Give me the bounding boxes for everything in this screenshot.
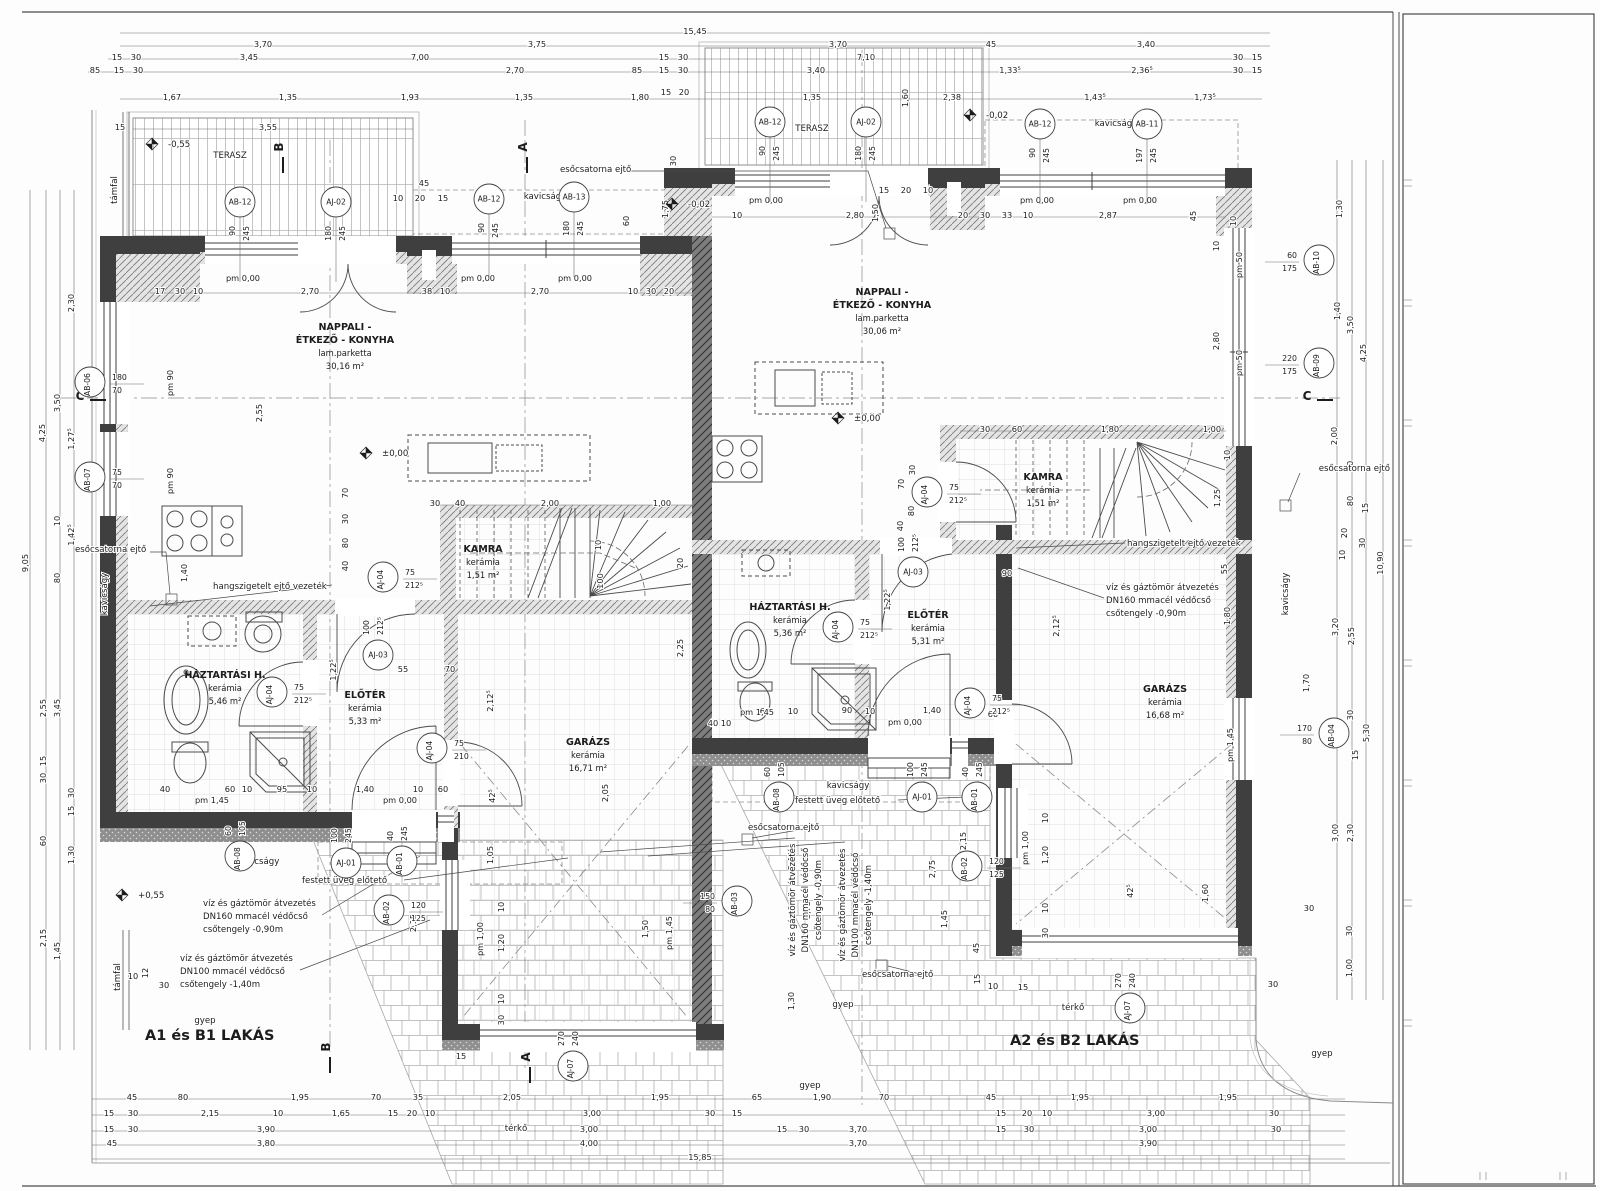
dimension-text: 15 (115, 122, 125, 132)
dimension-text: 15 (1252, 65, 1262, 75)
tag-code: AB-09 (1312, 354, 1321, 377)
dimension-text: 30 (1344, 926, 1354, 936)
dimension-text: pm 1,45 (1225, 728, 1235, 762)
tag-size: 60 (763, 767, 772, 777)
room-label: kerámia (1026, 485, 1060, 495)
dimension-text: 10 (413, 784, 423, 794)
dimension-text: pm 0,00 (383, 795, 417, 805)
annotation-text: kavicságy (827, 781, 870, 791)
dimension-text: 60 (38, 836, 48, 846)
dimension-text: 2,15 (201, 1108, 219, 1118)
dimension-text: 45 (1188, 211, 1198, 221)
dimension-text: 2,36⁵ (1131, 65, 1153, 75)
dimension-text: 1,42⁵ (66, 524, 76, 546)
dimension-text: pm 1,45 (195, 795, 229, 805)
tag-size: 40 (386, 831, 395, 841)
annotation-text: TERASZ (212, 151, 247, 161)
tag-size: 90 (477, 223, 486, 233)
room-label: KAMRA (1023, 472, 1063, 483)
dimension-text: pm 0,00 (749, 195, 783, 205)
dimension-text: 10 (628, 286, 638, 296)
dimension-text: 20 (958, 210, 968, 220)
dimension-text: 20 (1022, 1108, 1032, 1118)
dimension-text: 1,33⁵ (999, 65, 1021, 75)
dimension-text: 7,10 (857, 52, 875, 62)
dimension-text: 15 (104, 1108, 114, 1118)
annotation-text: víz és gáztömör átvezetés (203, 898, 316, 909)
dimension-text: 15 (879, 185, 889, 195)
dimension-text: 1,67 (163, 92, 181, 102)
tag-size: 220 (1282, 354, 1297, 363)
annotation-text: támfal (110, 176, 120, 204)
dimension-text: 15 (104, 1124, 114, 1134)
dimension-text: 70 (896, 479, 906, 489)
dimension-text: 40 (708, 718, 718, 728)
tag-code: AB-02 (960, 857, 969, 880)
tag-code: AJ-02 (326, 198, 346, 207)
dimension-text: 2,12⁵ (1051, 615, 1061, 637)
drawing-sheet: 15,453,703,753,70453,4015303,457,0015307… (0, 0, 1600, 1191)
dimension-text: 2,75 (927, 860, 937, 878)
dimension-text: 10 (721, 718, 731, 728)
dimension-text: 80 (178, 1092, 188, 1102)
dimension-text: 3,90 (1139, 1138, 1157, 1148)
tag-size: 75 (949, 483, 959, 492)
dimension-text: 45 (971, 943, 981, 953)
dimension-text: 3,75 (528, 39, 546, 49)
dimension-text: pm 1,45 (740, 707, 774, 717)
dimension-text: 1,73⁵ (1194, 92, 1216, 102)
dimension-text: pm 0,00 (888, 717, 922, 727)
dimension-text: 42⁵ (487, 789, 497, 803)
dimension-text: pm 50 (1234, 350, 1244, 376)
section-marker: B (319, 1042, 333, 1051)
dimension-text: 30 (678, 52, 688, 62)
section-marker: B (272, 142, 286, 151)
dimension-text: 2,12⁵ (485, 690, 495, 712)
tag-code: AJ-01 (912, 793, 932, 802)
dimension-text: 1,43⁵ (1084, 92, 1106, 102)
dimension-text: 10 (1040, 813, 1050, 823)
dimension-text: 70 (879, 1092, 889, 1102)
annotation-text: víz és gáztömör átvezetés (837, 848, 848, 961)
tag-size: 245 (772, 146, 781, 161)
dimension-text: 2,00 (541, 498, 559, 508)
dimension-text: 45 (127, 1092, 137, 1102)
room-label: NAPPALI - (855, 287, 908, 298)
tag-code: AB-07 (83, 468, 92, 491)
room-label: 5,33 m² (349, 716, 382, 726)
dimension-text: 70 (445, 664, 455, 674)
dimension-text: 1,30 (1334, 200, 1344, 218)
dimension-text: 30 (1357, 538, 1367, 548)
tag-size: 170 (1297, 724, 1312, 733)
tag-size: 175 (1282, 264, 1297, 273)
tag-code: AB-06 (83, 373, 92, 396)
tag-size: 90 (228, 226, 237, 236)
tag-size: 75 (860, 618, 870, 627)
tag-size: 210 (454, 752, 469, 761)
annotation-text: TERASZ (794, 124, 829, 134)
tag-size: 125 (989, 870, 1004, 879)
tag-size: 105 (238, 821, 247, 836)
dimension-text: 30 (980, 210, 990, 220)
unit-label: A2 és B2 LAKÁS (1010, 1032, 1139, 1049)
dimension-text: 30 (1304, 903, 1314, 913)
tag-size: 212⁵ (949, 496, 967, 505)
dimension-text: 3,90 (257, 1124, 275, 1134)
annotation-text: csőtengely -1,40m (864, 865, 874, 945)
dimension-text: 65 (752, 1092, 762, 1102)
tag-code: AJ-07 (566, 1059, 575, 1079)
tag-code: AB-13 (563, 193, 586, 202)
annotation-text: térkő (1062, 1002, 1084, 1013)
dimension-text: 30 (1233, 52, 1243, 62)
dimension-text: 30 (907, 465, 917, 475)
annotation-text: esőcsatorna ejtő (748, 823, 819, 833)
dimension-text: 1,45 (939, 910, 949, 928)
level-value: -0,55 (168, 140, 190, 150)
dimension-text: 15 (1252, 52, 1262, 62)
dimension-text: 2,70 (506, 65, 524, 75)
room-label: kerámia (911, 623, 945, 633)
dimension-text: 1,93 (401, 92, 419, 102)
dimension-text: 1,60 (900, 89, 910, 107)
dimension-text: 1,40 (179, 564, 189, 582)
dimension-text: 1,95 (291, 1092, 309, 1102)
dimension-text: 30 (980, 424, 990, 434)
annotation-text: esőcsatorna ejtő (1319, 464, 1390, 474)
level-marker-icon (360, 447, 372, 459)
dimension-text: 60 (225, 784, 235, 794)
tag-code: AB-01 (395, 852, 404, 875)
annotation-text: festett üveg előtető (795, 796, 880, 806)
tag-size: 100 (362, 620, 371, 635)
annotation-text: DN160 mmacél védőcső (1106, 595, 1211, 606)
room-label: lam.parketta (318, 348, 372, 358)
dimension-text: pm 1,00 (1020, 831, 1030, 865)
tag-size: 270 (1114, 973, 1123, 988)
dimension-text: 10 (1023, 210, 1033, 220)
tag-size: 245 (400, 826, 409, 841)
dimension-text: 1,60 (1200, 884, 1210, 902)
dimension-text: 1,75 (660, 200, 670, 218)
tag-size: 90 (1028, 148, 1037, 158)
dimension-text: 60 (621, 216, 631, 226)
tag-code: AJ-03 (903, 568, 923, 577)
dimension-text: 15 (777, 1124, 787, 1134)
dimension-text: 30 (799, 1124, 809, 1134)
dimension-text: pm 0,00 (558, 273, 592, 283)
dimension-text: 30 (133, 65, 143, 75)
tag-code: AJ-04 (425, 741, 434, 761)
room-label: kerámia (466, 557, 500, 567)
dimension-text: 2,55 (38, 699, 48, 717)
dimension-text: 2,55 (254, 404, 264, 422)
dimension-text: 30 (175, 286, 185, 296)
tag-code: AJ-04 (376, 570, 385, 590)
tag-size: 197 (1135, 148, 1144, 163)
dimension-text: 10 (1040, 903, 1050, 913)
section-marker: A (516, 142, 530, 152)
dimension-text: 10 (425, 1108, 435, 1118)
dimension-text: 70 (371, 1092, 381, 1102)
dimension-text: 10 (496, 902, 506, 912)
section-marker: C (1303, 389, 1312, 403)
tag-size: 245 (920, 762, 929, 777)
tag-code: AB-08 (233, 847, 242, 870)
dimension-text: 30 (128, 1108, 138, 1118)
dimension-text: 30 (1268, 979, 1278, 989)
tag-size: 70 (112, 481, 122, 490)
dimension-text: 10 (1337, 550, 1347, 560)
dimension-text: 10 (1042, 1108, 1052, 1118)
dimension-text: 70 (340, 488, 350, 498)
tag-size: 240 (1128, 973, 1137, 988)
dimension-text: 30 (1024, 1124, 1034, 1134)
room-label: 30,06 m² (863, 326, 901, 336)
dimension-text: 30 (678, 65, 688, 75)
dimension-text: 2,38 (943, 92, 961, 102)
dimension-text: 2,55 (1346, 627, 1356, 645)
dimension-text: 2,70 (301, 286, 319, 296)
tag-size: 180 (854, 146, 863, 161)
dimension-text: 15 (1350, 750, 1360, 760)
unit-label: A1 és B1 LAKÁS (145, 1027, 274, 1044)
tag-size: 212⁵ (405, 581, 423, 590)
dimension-text: 2,30 (1345, 824, 1355, 842)
room-label: kerámia (348, 703, 382, 713)
dimension-text: 30 (159, 980, 169, 990)
dimension-text: 1,00 (1203, 424, 1221, 434)
dimension-text: 80 (906, 506, 916, 516)
dimension-text: 1,45 (52, 942, 62, 960)
dimension-text: 38 (422, 286, 432, 296)
rain-pipe-icon (884, 228, 895, 239)
dimension-text: 30 (128, 1124, 138, 1134)
tag-size: 270 (557, 1031, 566, 1046)
dimension-text: 30 (340, 514, 350, 524)
tag-size: 212⁵ (294, 696, 312, 705)
annotation-text: támfal (113, 963, 123, 991)
tag-size: 245 (242, 226, 251, 241)
annotation-text: kavicságy (1281, 573, 1291, 616)
dimension-text: 15 (38, 756, 48, 766)
dimension-text: 1,80 (1222, 607, 1232, 625)
dimension-text: 1,70 (1301, 674, 1311, 692)
dimension-text: 40 (160, 784, 170, 794)
dimension-text: 20 (1339, 528, 1349, 538)
tag-code: AJ-04 (963, 696, 972, 716)
tag-size: 80 (705, 905, 715, 914)
dimension-text: 15 (996, 1108, 1006, 1118)
room-label: kerámia (208, 683, 242, 693)
dimension-text: pm 90 (165, 468, 175, 494)
dimension-text: 95 (277, 784, 287, 794)
dimension-text: 1,35 (279, 92, 297, 102)
tag-size: 212⁵ (376, 617, 385, 635)
dimension-text: 30 (668, 156, 678, 166)
tag-size: 105 (777, 762, 786, 777)
dimension-text: 30 (646, 286, 656, 296)
dimension-text: 42⁵ (1125, 884, 1135, 898)
level-value: ±0,00 (854, 414, 880, 424)
tag-size: 245 (1149, 148, 1158, 163)
tag-size: 75 (454, 739, 464, 748)
dimension-text: 10 (496, 994, 506, 1004)
dimension-text: 30 (1040, 928, 1050, 938)
tag-size: 100 (906, 762, 915, 777)
dimension-text: pm 0,00 (461, 273, 495, 283)
dimension-text: 12 (140, 968, 150, 978)
adjacent-sheet-panel (1403, 14, 1594, 1184)
dimension-text: 80 (340, 538, 350, 548)
annotation-text: hangszigetelt ejtő vezeték (213, 581, 327, 592)
dimension-text: 3,55 (259, 122, 277, 132)
room-label: 5,36 m² (774, 628, 807, 638)
dimension-text: 5,30 (1361, 724, 1371, 742)
room-label: 1,51 m² (467, 570, 500, 580)
tag-size: 90 (758, 146, 767, 156)
dimension-text: 10 (242, 784, 252, 794)
annotation-text: DN100 mmacél védőcső (180, 966, 285, 977)
dimension-text: 1,00 (1344, 959, 1354, 977)
dimension-text: 1,50 (640, 920, 650, 938)
tag-size: 100 (330, 828, 339, 843)
dimension-text: 15 (732, 1108, 742, 1118)
tag-size: 245 (1042, 148, 1051, 163)
annotation-text: gyep (194, 1016, 215, 1026)
dimension-text: 3,40 (1137, 39, 1155, 49)
dimension-text: 2,25 (675, 639, 685, 657)
tag-size: 150 (700, 892, 715, 901)
dimension-text: 15,85 (688, 1152, 711, 1162)
level-value: ±0,00 (382, 449, 408, 459)
tag-size: 240 (571, 1031, 580, 1046)
dimension-text: 30 (705, 1108, 715, 1118)
dimension-text: 30 (38, 773, 48, 783)
room-label: ÉTKEZŐ - KONYHA (296, 332, 395, 346)
tag-size: 245 (975, 762, 984, 777)
dimension-text: 15 (66, 806, 76, 816)
annotation-text: térkő (505, 1123, 527, 1134)
dimension-text: 3,00 (583, 1108, 601, 1118)
annotation-text: gyep (832, 1000, 853, 1010)
dimension-text: 3,70 (849, 1124, 867, 1134)
tag-size: 60 (224, 826, 233, 836)
dimension-text: pm 1,00 (475, 922, 485, 956)
tag-code: AJ-04 (920, 485, 929, 505)
dimension-text: 1,95 (1219, 1092, 1237, 1102)
dimension-text: 15 (659, 52, 669, 62)
dimension-text: 30 (430, 498, 440, 508)
dimension-text: 1,80 (631, 92, 649, 102)
room-label: ELŐTÉR (344, 687, 386, 701)
terrace-left (133, 118, 413, 236)
dimension-text: 30 (131, 52, 141, 62)
dimension-text: 40 (455, 498, 465, 508)
room-label: lam.parketta (855, 313, 909, 323)
annotation-text: hangszigetelt ejtő vezeték (1127, 538, 1241, 549)
tag-size: 75 (112, 468, 122, 477)
dimension-text: pm 90 (165, 370, 175, 396)
dimension-text: 1,65 (332, 1108, 350, 1118)
tag-size: 180 (562, 221, 571, 236)
dimension-text: 1,20 (1040, 846, 1050, 864)
tag-code: AJ-07 (1123, 1001, 1132, 1021)
tag-code: AJ-02 (856, 118, 876, 127)
dimension-text: 2,30 (66, 294, 76, 312)
tag-size: 212⁵ (860, 631, 878, 640)
level-value: +0,55 (138, 891, 164, 901)
annotation-text: DN160 mmacél védőcső (203, 911, 308, 922)
dimension-text: 2,05 (600, 784, 610, 802)
dimension-text: 17 (155, 286, 165, 296)
tag-size: 120 (411, 901, 426, 910)
dimension-text: 15 (114, 65, 124, 75)
dimension-text: 1,40 (923, 705, 941, 715)
dimension-text: 1,90 (813, 1092, 831, 1102)
dimension-text: 15,45 (683, 26, 706, 36)
tag-code: AB-11 (1136, 120, 1159, 129)
dimension-text: 80 (1345, 496, 1355, 506)
dimension-text: 3,70 (849, 1138, 867, 1148)
tag-code: AB-02 (382, 901, 391, 924)
annotation-text: víz és gáztömör átvezetés (787, 843, 798, 956)
dimension-text: 1,30 (786, 992, 796, 1010)
tag-size: 245 (868, 146, 877, 161)
annotation-text: csőtengely -0,90m (203, 925, 283, 935)
annotation-text: esőcsatorna ejtő (862, 970, 933, 980)
dimension-text: 45 (986, 39, 996, 49)
dimension-text: 4,00 (580, 1138, 598, 1148)
dimension-text: 3,40 (807, 65, 825, 75)
dimension-text: 1,05 (485, 846, 495, 864)
dimension-text: 90 (1002, 568, 1012, 578)
dimension-text: 20 (407, 1108, 417, 1118)
dimension-text: 1,25 (1212, 489, 1222, 507)
dimension-text: 10 (788, 706, 798, 716)
annotation-text: kavicságy (1095, 119, 1138, 129)
dimension-text: 1,20 (496, 934, 506, 952)
room-label: KAMRA (463, 544, 503, 555)
dimension-text: 2,70 (531, 286, 549, 296)
dimension-text: 1,22⁵ (882, 589, 892, 611)
room-label: GARÁZS (566, 735, 610, 748)
dimension-text: 80 (52, 573, 62, 583)
dimension-text: 30 (1345, 710, 1355, 720)
dimension-text: 30 (1233, 65, 1243, 75)
dimension-text: 40 (340, 561, 350, 571)
dimension-text: pm 0,00 (1020, 195, 1054, 205)
annotation-text: gyep (1311, 1049, 1332, 1059)
room-label: 30,16 m² (326, 361, 364, 371)
dimension-text: 60 (1012, 424, 1022, 434)
dimension-text: 3,45 (52, 699, 62, 717)
room-label: NAPPALI - (318, 322, 371, 333)
tag-code: AB-10 (1312, 251, 1321, 274)
dimension-text: 10 (1211, 241, 1221, 251)
dimension-text: 3,00 (1139, 1124, 1157, 1134)
annotation-text: csőtengely -0,90m (814, 860, 824, 940)
dimension-text: 85 (632, 65, 642, 75)
dimension-text: 55 (398, 664, 408, 674)
dimension-text: 7,00 (411, 52, 429, 62)
room-label: 5,46 m² (209, 696, 242, 706)
dimension-text: 85 (90, 65, 100, 75)
dimension-text: 10 (865, 706, 875, 716)
section-marker: A (519, 1052, 533, 1062)
